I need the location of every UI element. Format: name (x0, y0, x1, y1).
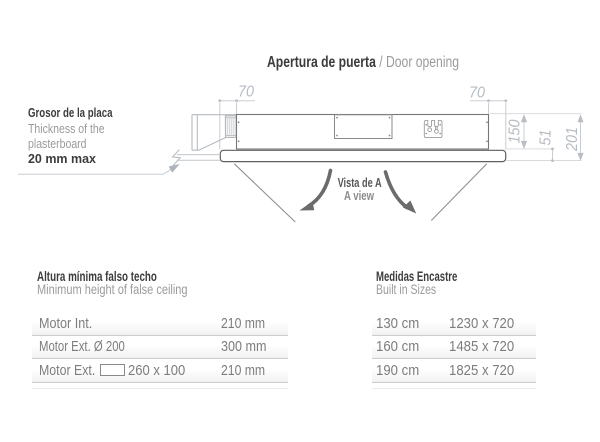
svg-text:51: 51 (537, 129, 555, 145)
svg-text:201: 201 (563, 127, 581, 152)
svg-text:70: 70 (238, 83, 255, 101)
svg-text:150: 150 (506, 119, 524, 144)
svg-text:70: 70 (469, 84, 486, 102)
